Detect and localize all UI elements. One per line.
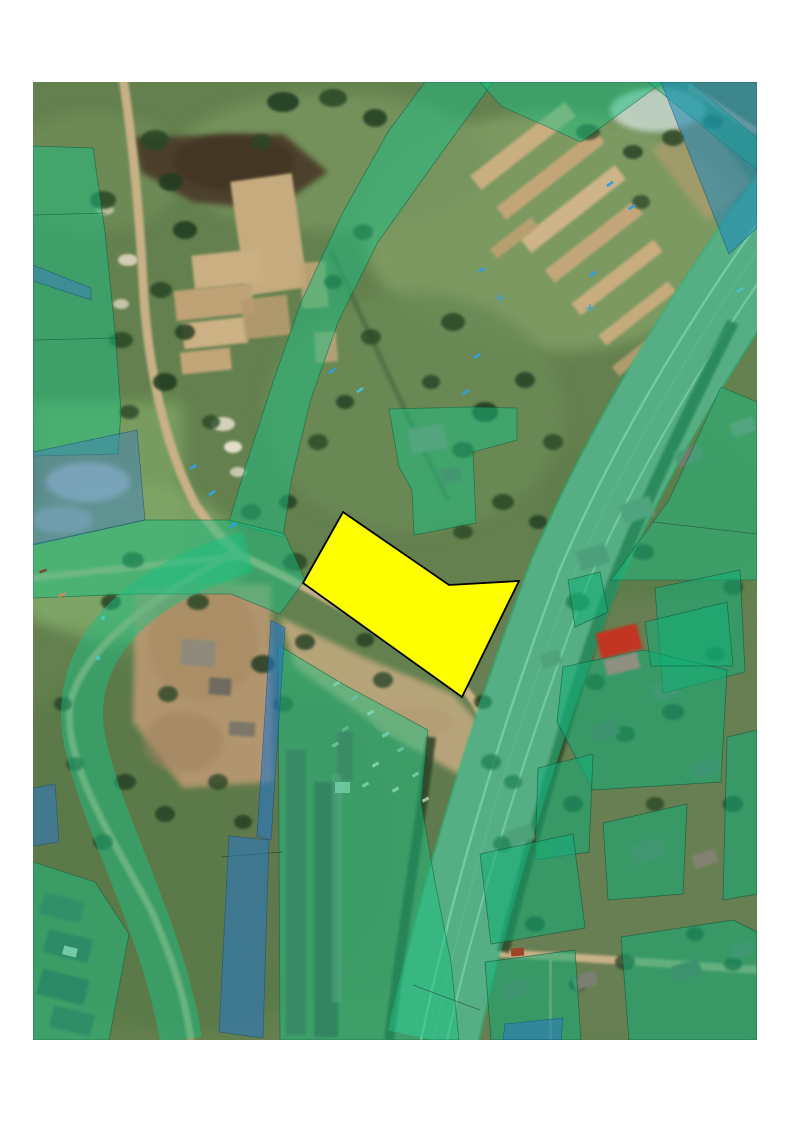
- page: { "map": { "x": 33, "y": 82, "width": 72…: [0, 0, 793, 1122]
- map-canvas: [33, 82, 757, 1040]
- satellite-cadastral-map[interactable]: [33, 82, 757, 1040]
